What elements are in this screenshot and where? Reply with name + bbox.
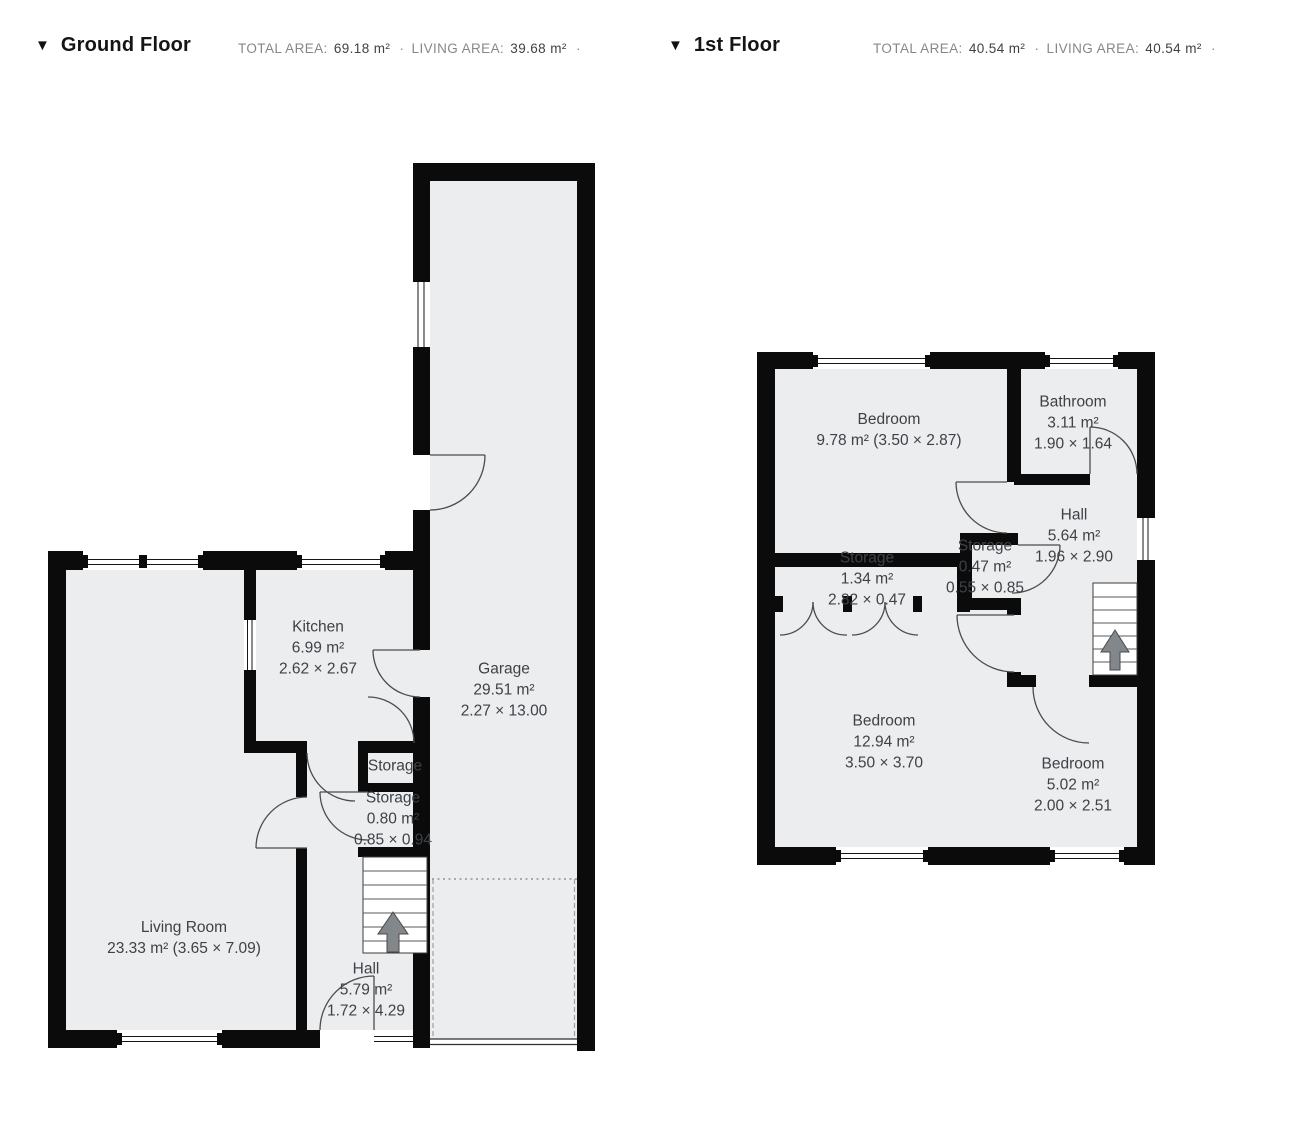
room-name: Garage: [461, 659, 548, 680]
room-label-hall-ground: Hall 5.79 m² 1.72 × 4.29: [327, 959, 405, 1022]
living-area-value: 40.54 m²: [1145, 41, 1201, 56]
room-area: 5.79 m²: [327, 980, 405, 1001]
floor-fill: [66, 181, 577, 1039]
room-dims: 1.96 × 2.90: [1035, 547, 1113, 568]
room-name: Bedroom: [1034, 754, 1112, 775]
ground-floor-stats: TOTAL AREA: 69.18 m² · LIVING AREA: 39.6…: [238, 41, 584, 56]
room-name: Bedroom: [845, 711, 923, 732]
room-label-bathroom: Bathroom 3.11 m² 1.90 × 1.64: [1034, 392, 1112, 455]
garage-door: [430, 1039, 577, 1045]
room-label-storage-wide: Storage 1.34 m² 2.82 × 0.47: [828, 548, 906, 611]
floor-title: Ground Floor: [61, 34, 191, 57]
room-area: 12.94 m²: [845, 732, 923, 753]
room-name: Hall: [327, 959, 405, 980]
room-label-living-room: Living Room 23.33 m² (3.65 × 7.09): [107, 917, 261, 959]
room-name: Storage: [354, 788, 432, 809]
total-area-label: TOTAL AREA:: [873, 41, 963, 56]
room-name: Storage: [828, 548, 906, 569]
room-name: Hall: [1035, 505, 1113, 526]
room-dims: 0.85 × 0.94: [354, 830, 432, 851]
room-dims: 2.62 × 2.67: [279, 659, 357, 680]
room-dims: 2.00 × 2.51: [1034, 796, 1112, 817]
separator-dot: ·: [399, 41, 404, 56]
room-label-garage: Garage 29.51 m² 2.27 × 13.00: [461, 659, 548, 722]
room-area: 1.34 m²: [828, 569, 906, 590]
total-area-value: 69.18 m²: [334, 41, 390, 56]
room-label-bedroom-left: Bedroom 12.94 m² 3.50 × 3.70: [845, 711, 923, 774]
room-name: Kitchen: [279, 617, 357, 638]
living-area-value: 39.68 m²: [510, 41, 566, 56]
room-dims: 2.27 × 13.00: [461, 701, 548, 722]
room-name: Living Room: [107, 917, 261, 938]
room-name: Bathroom: [1034, 392, 1112, 413]
total-area-label: TOTAL AREA:: [238, 41, 328, 56]
room-area: 3.11 m²: [1034, 413, 1112, 434]
total-area-value: 40.54 m²: [969, 41, 1025, 56]
stairs: [1093, 583, 1137, 675]
room-label-hall-first: Hall 5.64 m² 1.96 × 2.90: [1035, 505, 1113, 568]
room-dims: 3.50 × 3.70: [845, 753, 923, 774]
room-area: 9.78 m² (3.50 × 2.87): [816, 430, 961, 451]
room-label-storage-upper: Storage: [368, 756, 422, 777]
room-name: Storage: [368, 756, 422, 777]
separator-dot: ·: [1034, 41, 1039, 56]
floor-title: 1st Floor: [694, 34, 780, 57]
stairs: [363, 857, 427, 953]
room-area: 23.33 m² (3.65 × 7.09): [107, 938, 261, 959]
room-area: 6.99 m²: [279, 638, 357, 659]
room-name: Storage: [946, 536, 1024, 557]
room-label-bedroom-right: Bedroom 5.02 m² 2.00 × 2.51: [1034, 754, 1112, 817]
room-label-bedroom-top: Bedroom 9.78 m² (3.50 × 2.87): [816, 409, 961, 451]
collapse-triangle-icon[interactable]: ▼: [668, 38, 683, 53]
room-area: 5.02 m²: [1034, 775, 1112, 796]
room-area: 29.51 m²: [461, 680, 548, 701]
ground-floor-header: ▼ Ground Floor: [35, 34, 191, 57]
room-dims: 1.72 × 4.29: [327, 1001, 405, 1022]
separator-dot: ·: [576, 41, 581, 56]
first-floor-stats: TOTAL AREA: 40.54 m² · LIVING AREA: 40.5…: [873, 41, 1219, 56]
separator-dot: ·: [1211, 41, 1216, 56]
room-dims: 1.90 × 1.64: [1034, 434, 1112, 455]
room-dims: 2.82 × 0.47: [828, 590, 906, 611]
living-area-label: LIVING AREA:: [412, 41, 505, 56]
room-name: Bedroom: [816, 409, 961, 430]
room-area: 0.47 m²: [946, 557, 1024, 578]
room-dims: 0.55 × 0.85: [946, 578, 1024, 599]
living-area-label: LIVING AREA:: [1047, 41, 1140, 56]
room-area: 0.80 m²: [354, 809, 432, 830]
room-area: 5.64 m²: [1035, 526, 1113, 547]
collapse-triangle-icon[interactable]: ▼: [35, 38, 50, 53]
room-label-storage-lower: Storage 0.80 m² 0.85 × 0.94: [354, 788, 432, 851]
first-floor-header: ▼ 1st Floor: [668, 34, 780, 57]
room-label-storage-small: Storage 0.47 m² 0.55 × 0.85: [946, 536, 1024, 599]
room-label-kitchen: Kitchen 6.99 m² 2.62 × 2.67: [279, 617, 357, 680]
